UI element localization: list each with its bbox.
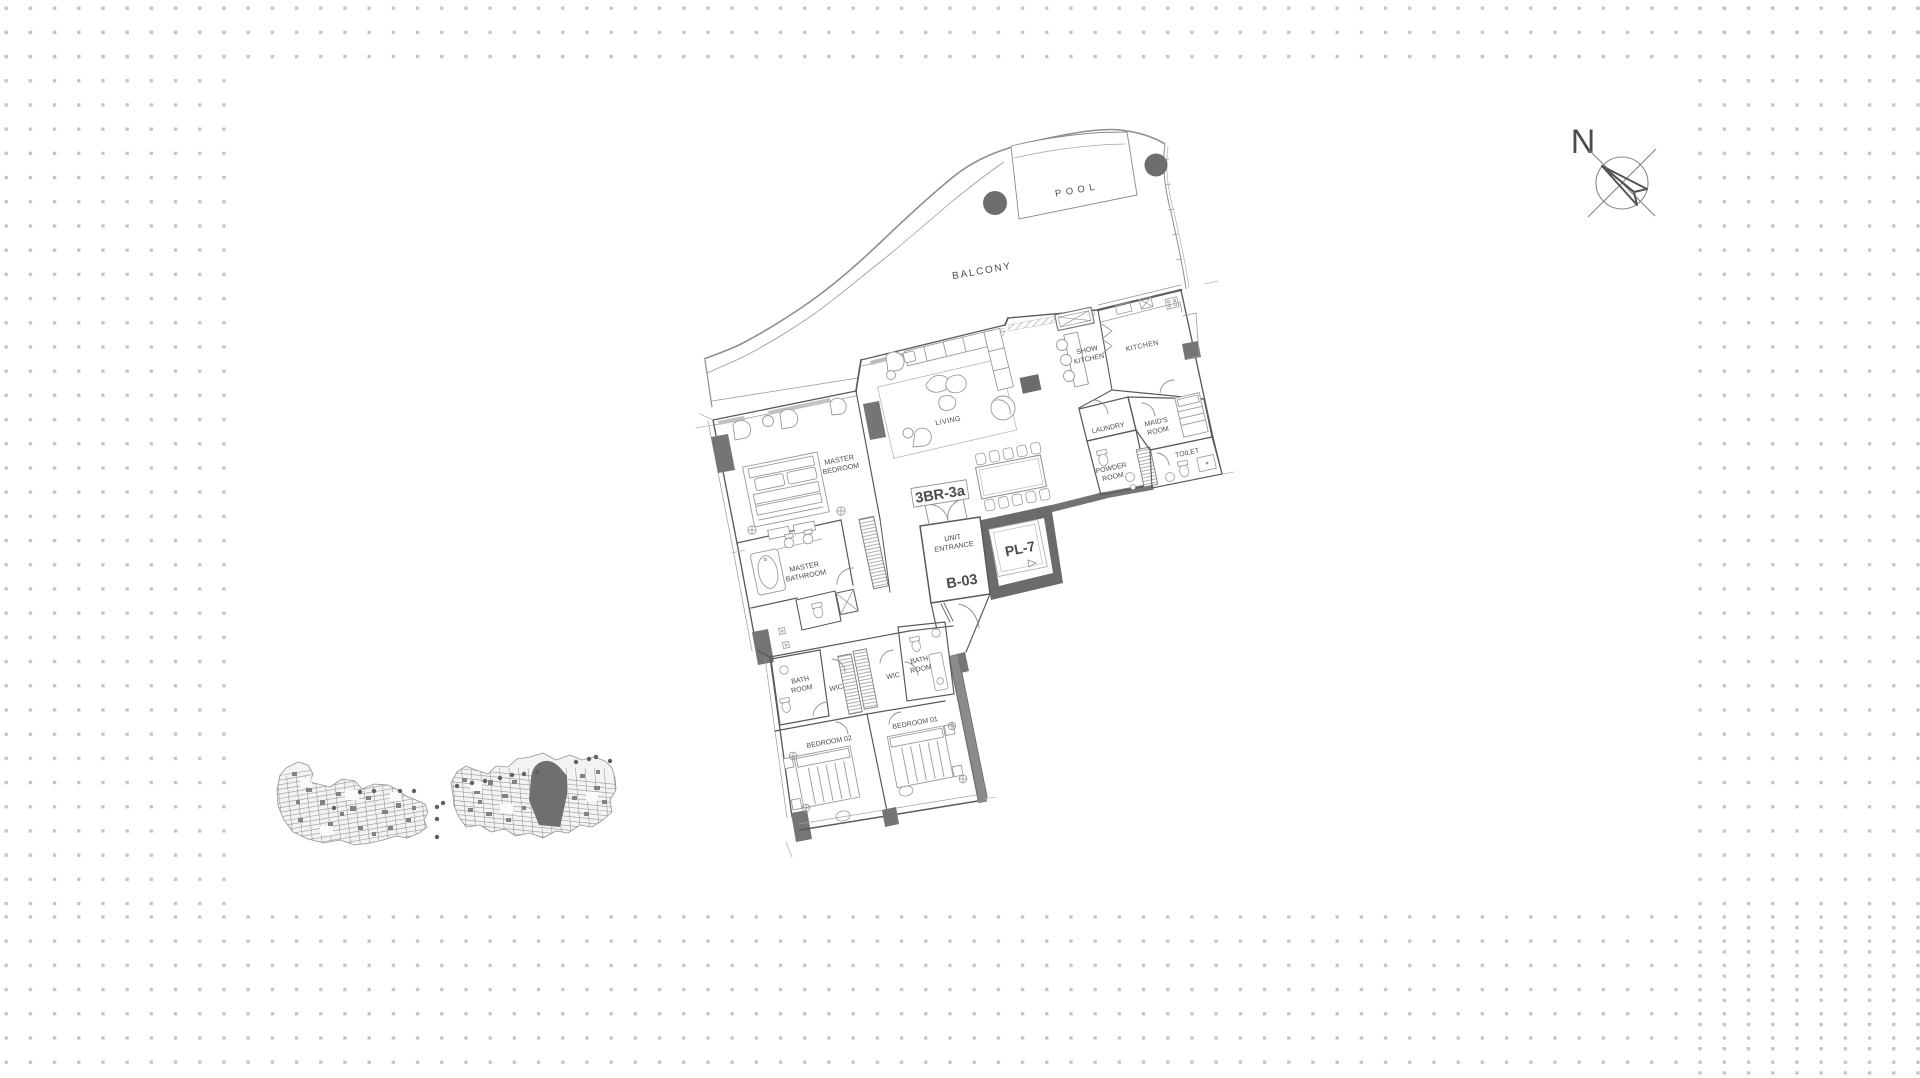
svg-text:N: N [1571,123,1596,161]
